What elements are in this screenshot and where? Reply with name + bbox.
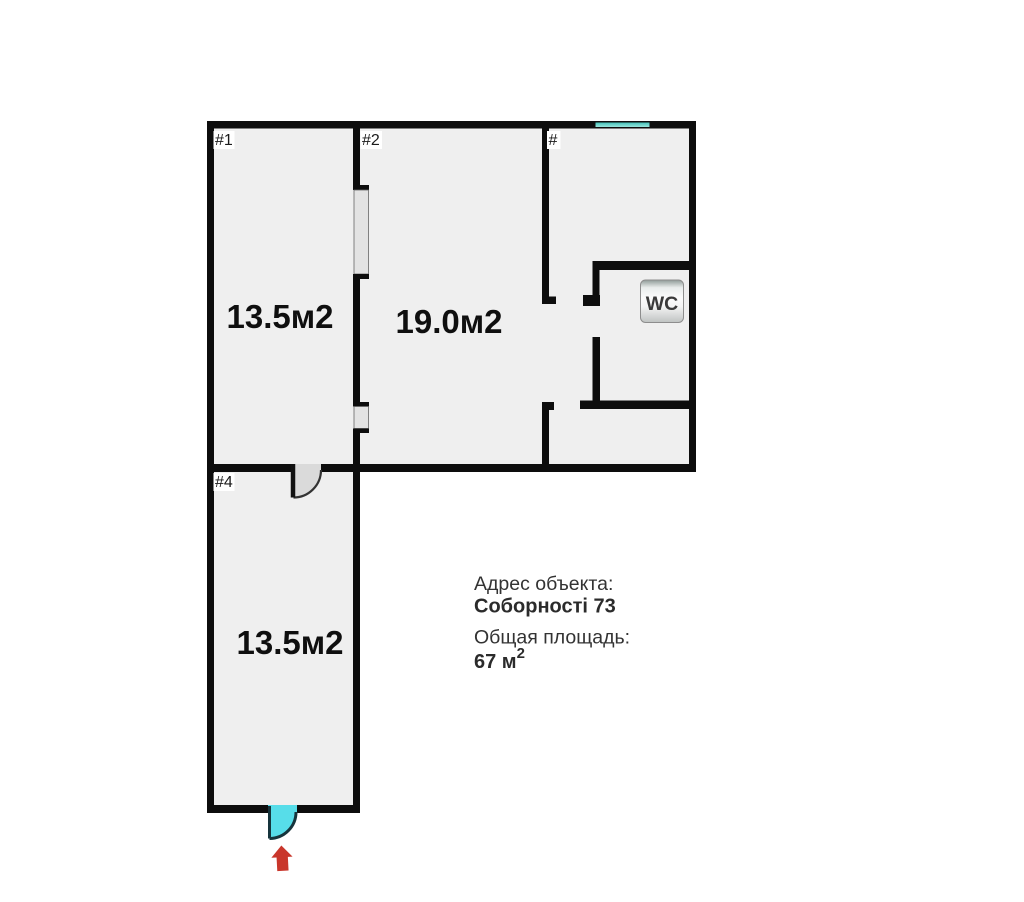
svg-text:67 м2: 67 м2 bbox=[474, 645, 525, 673]
svg-text:#4: #4 bbox=[215, 474, 233, 491]
svg-text:Адрес объекта:: Адрес объекта: bbox=[474, 573, 613, 595]
svg-text:13.5м2: 13.5м2 bbox=[237, 624, 344, 661]
svg-text:Общая площадь:: Общая площадь: bbox=[474, 627, 630, 649]
svg-text:#2: #2 bbox=[362, 132, 380, 149]
svg-text:19.0м2: 19.0м2 bbox=[396, 303, 503, 340]
svg-text:#1: #1 bbox=[215, 132, 233, 149]
svg-text:#: # bbox=[549, 132, 558, 149]
svg-text:WC: WC bbox=[646, 293, 679, 315]
svg-text:Соборності 73: Соборності 73 bbox=[474, 596, 616, 618]
svg-text:13.5м2: 13.5м2 bbox=[227, 298, 334, 335]
